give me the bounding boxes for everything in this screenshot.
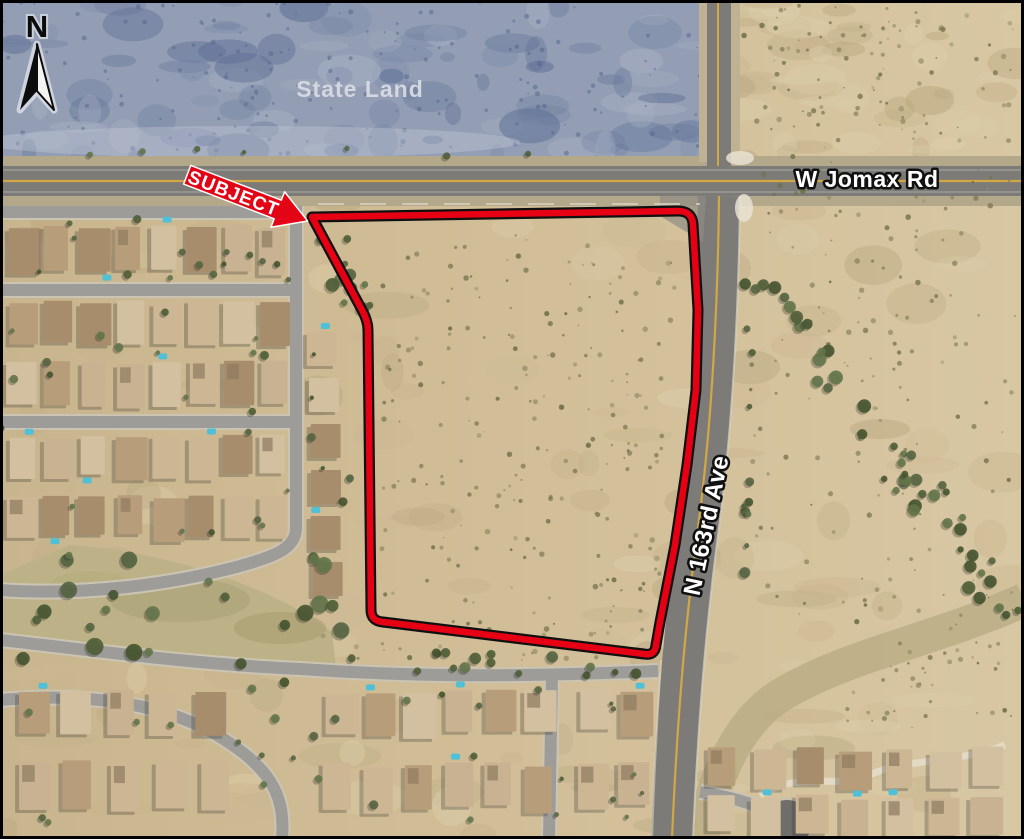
map-canvas: State Land W Jomax Rd N 163rd Ave SUBJEC…: [0, 0, 1024, 839]
north-label: N: [26, 9, 48, 44]
jomax-road-label: W Jomax Rd: [795, 166, 938, 192]
state-land-label: State Land: [296, 76, 424, 102]
aerial-map: State Land W Jomax Rd N 163rd Ave SUBJEC…: [0, 0, 1024, 839]
